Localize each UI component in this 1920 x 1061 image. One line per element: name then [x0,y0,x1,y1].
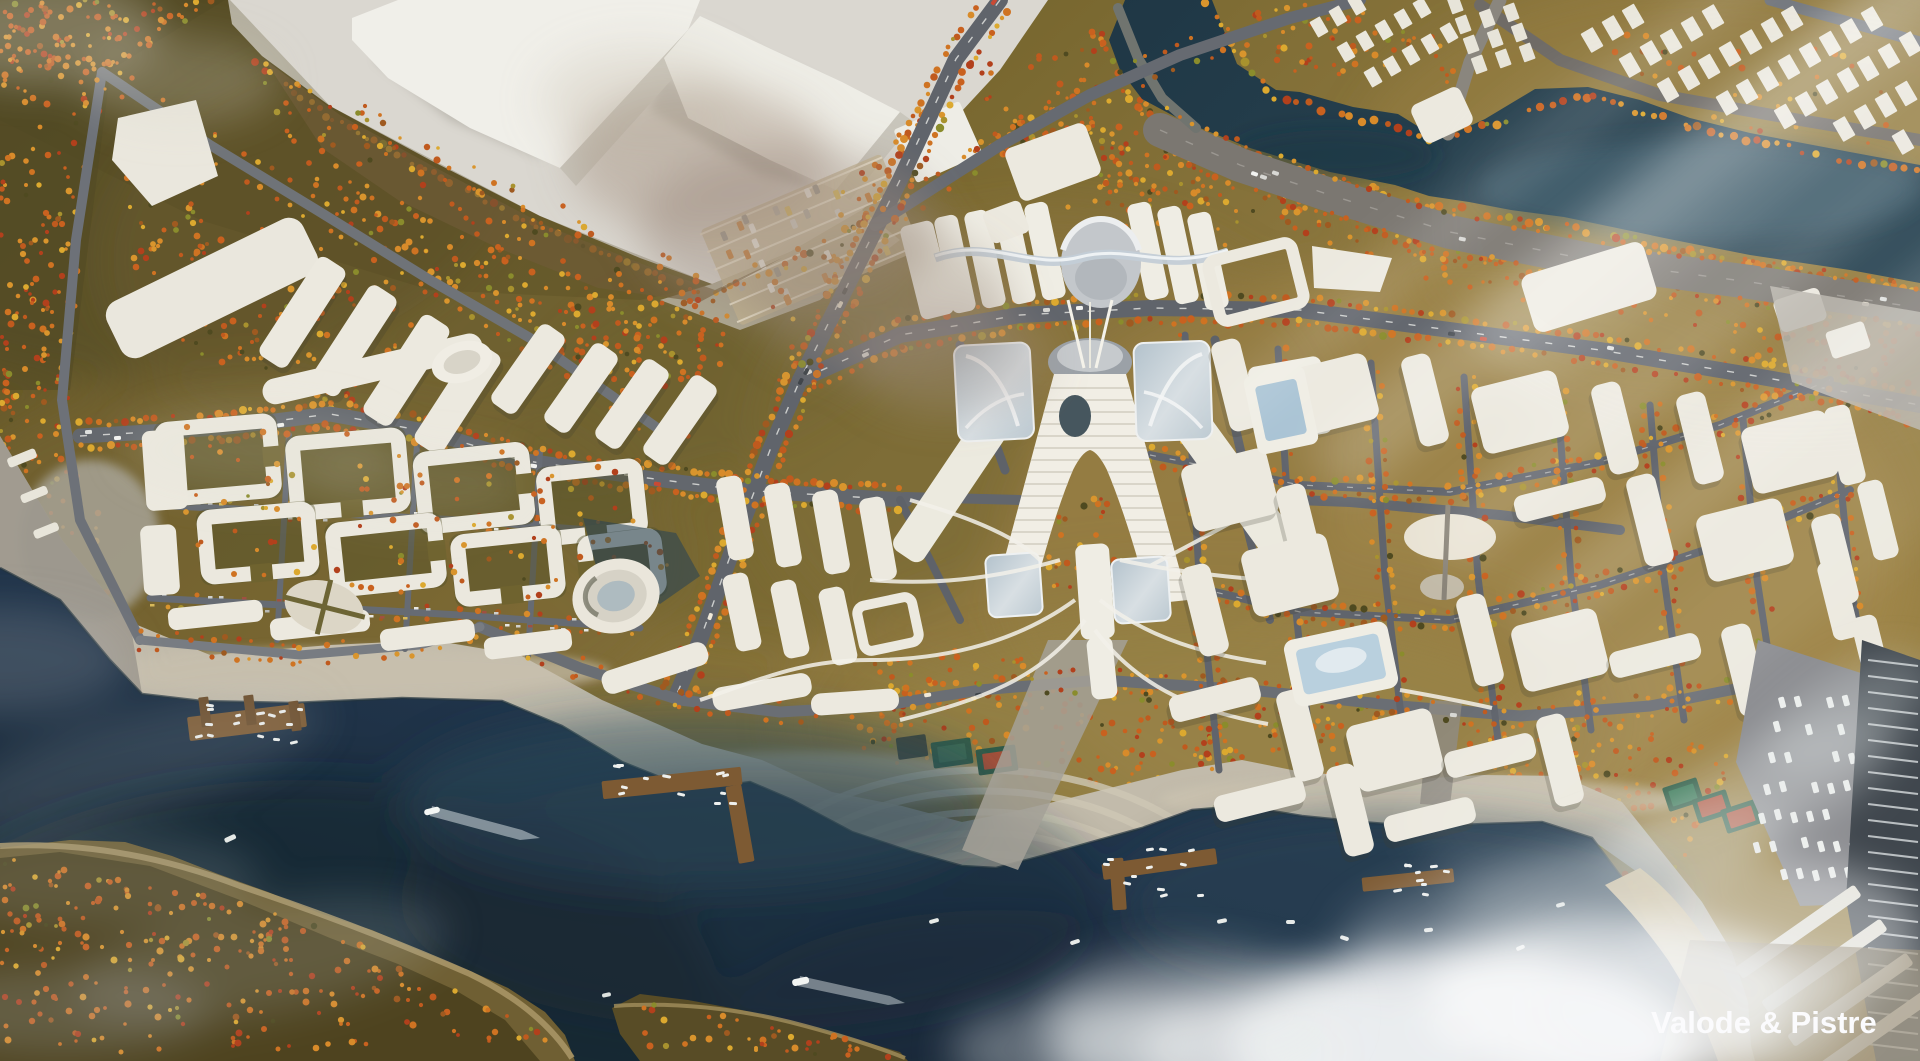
svg-text:Valode & Pistre: Valode & Pistre [1651,1005,1877,1040]
